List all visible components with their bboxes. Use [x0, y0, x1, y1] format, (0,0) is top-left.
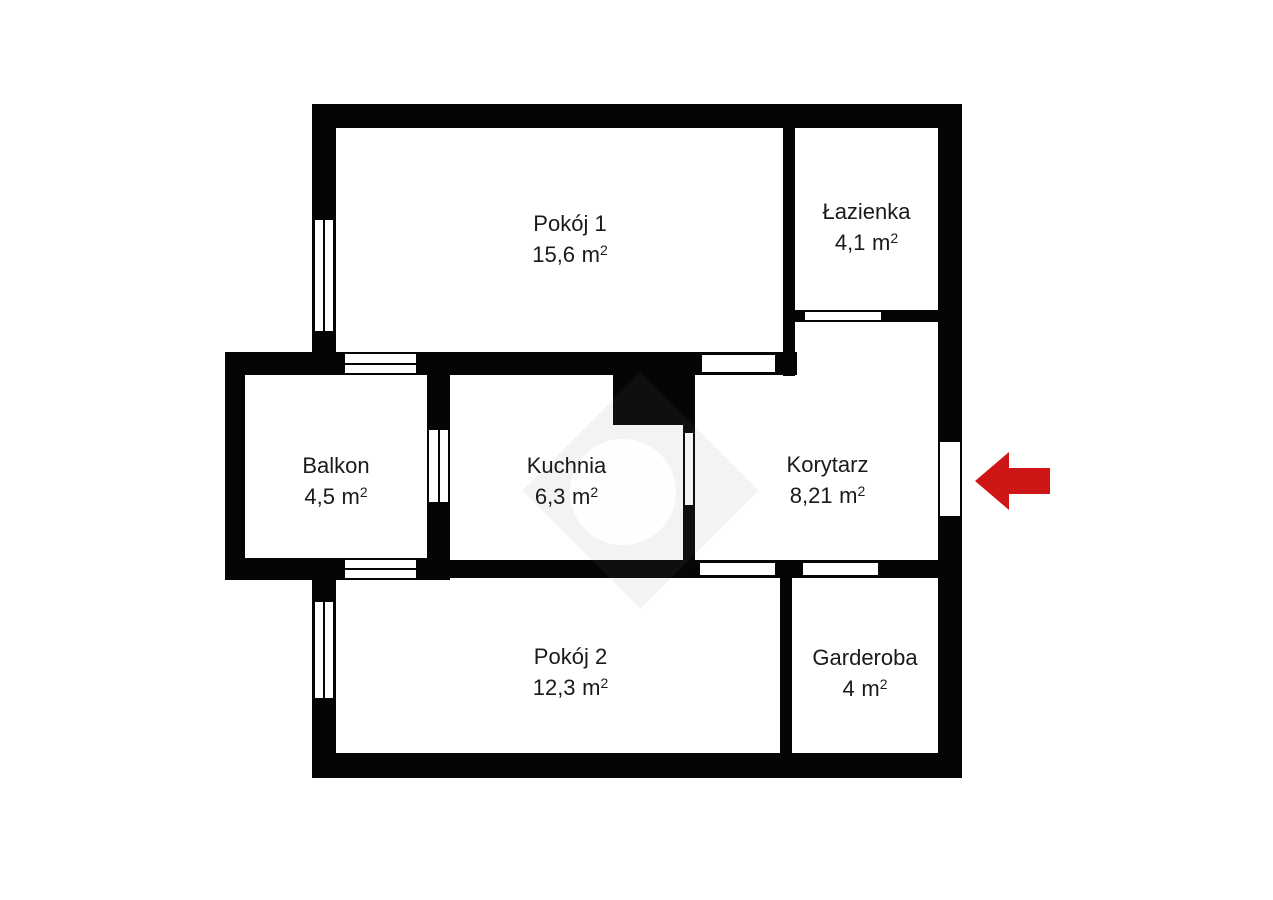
- window-balkon-pokoj2: [343, 558, 418, 580]
- wall-pokoj2-garderoba: [780, 578, 792, 753]
- room-name-label: Kuchnia: [527, 450, 607, 481]
- room-pokoj-2: Pokój 2 12,3m2: [335, 578, 780, 753]
- room-name-label: Pokój 2: [533, 641, 609, 672]
- room-area-label: 8,21m2: [787, 480, 869, 511]
- room-name-label: Garderoba: [812, 642, 917, 673]
- wall-right: [938, 104, 962, 778]
- room-label: Garderoba 4m2: [812, 642, 917, 704]
- wall-top: [314, 104, 962, 128]
- room-garderoba: Garderoba 4m2: [792, 578, 938, 753]
- room-lazienka: Łazienka 4,1m2: [795, 126, 938, 310]
- room-area-label: 4,1m2: [822, 227, 910, 258]
- room-area-label: 15,6m2: [532, 239, 608, 270]
- room-label: Pokój 1 15,6m2: [532, 208, 608, 270]
- door-lazienka-korytarz: [805, 310, 881, 322]
- door-korytarz-pokoj2: [700, 560, 775, 578]
- room-area-label: 4,5m2: [302, 481, 369, 512]
- room-label: Łazienka 4,1m2: [822, 196, 910, 258]
- room-area-label: 6,3m2: [527, 481, 607, 512]
- room-korytarz: Korytarz 8,21m2: [695, 322, 938, 560]
- wall-bottom: [312, 753, 962, 778]
- room-kuchnia: Kuchnia 6,3m2: [450, 375, 683, 560]
- room-label: Korytarz 8,21m2: [787, 449, 869, 511]
- window-pokoj2-west: [313, 600, 335, 700]
- room-label: Balkon 4,5m2: [302, 450, 369, 512]
- wall-balkon-west: [225, 352, 245, 580]
- floor-plan: Pokój 1 15,6m2 Łazienka 4,1m2 Balkon 4,5…: [0, 0, 1273, 900]
- room-name-label: Łazienka: [822, 196, 910, 227]
- room-area-label: 4m2: [812, 673, 917, 704]
- window-balkon-kuchnia: [427, 428, 450, 504]
- window-pokoj1-west: [313, 218, 335, 333]
- room-label: Pokój 2 12,3m2: [533, 641, 609, 703]
- room-label: Kuchnia 6,3m2: [527, 450, 607, 512]
- room-balkon: Balkon 4,5m2: [245, 373, 427, 558]
- room-name-label: Korytarz: [787, 449, 869, 480]
- room-name-label: Balkon: [302, 450, 369, 481]
- entrance-arrow-icon: [970, 446, 1054, 514]
- door-korytarz-garderoba: [803, 560, 878, 578]
- room-area-label: 12,3m2: [533, 672, 609, 703]
- window-pokoj1-balkon: [343, 352, 418, 375]
- wall-middle-south: [427, 560, 962, 578]
- room-name-label: Pokój 1: [532, 208, 608, 239]
- room-pokoj-1: Pokój 1 15,6m2: [335, 126, 783, 352]
- entrance-arrow-shape: [975, 452, 1050, 510]
- entrance-door-opening: [938, 442, 962, 516]
